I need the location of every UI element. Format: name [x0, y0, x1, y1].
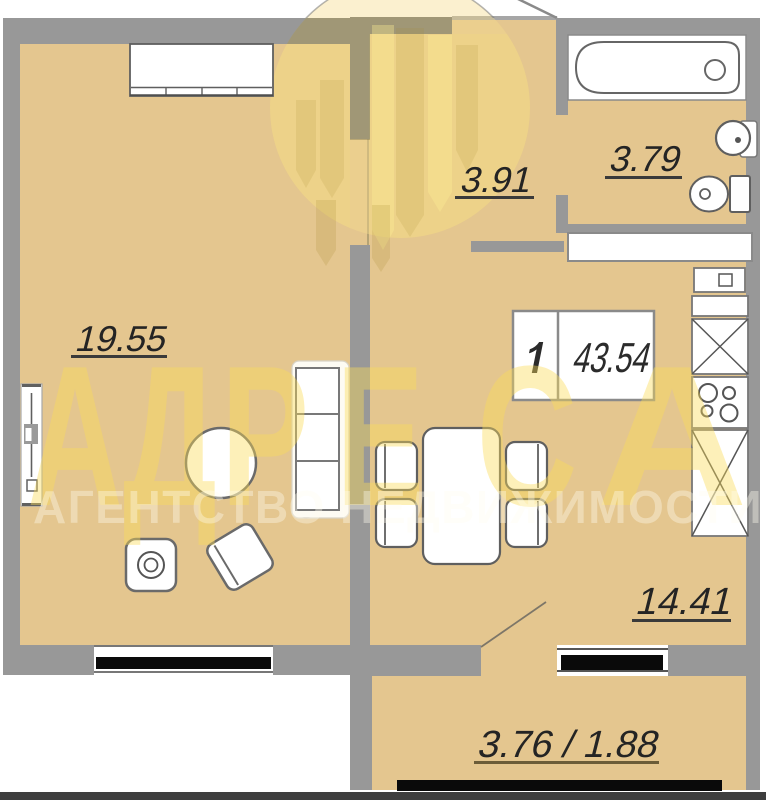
svg-text:3.76 / 1.88: 3.76 / 1.88	[474, 724, 664, 766]
svg-text:АГЕНТСТВО НЕДВИЖИМОСТИ: АГЕНТСТВО НЕДВИЖИМОСТИ	[33, 481, 763, 533]
svg-text:19.55: 19.55	[72, 319, 172, 359]
svg-text:3.79: 3.79	[606, 139, 686, 179]
svg-text:3.91: 3.91	[457, 160, 537, 200]
svg-text:14.41: 14.41	[632, 581, 738, 623]
